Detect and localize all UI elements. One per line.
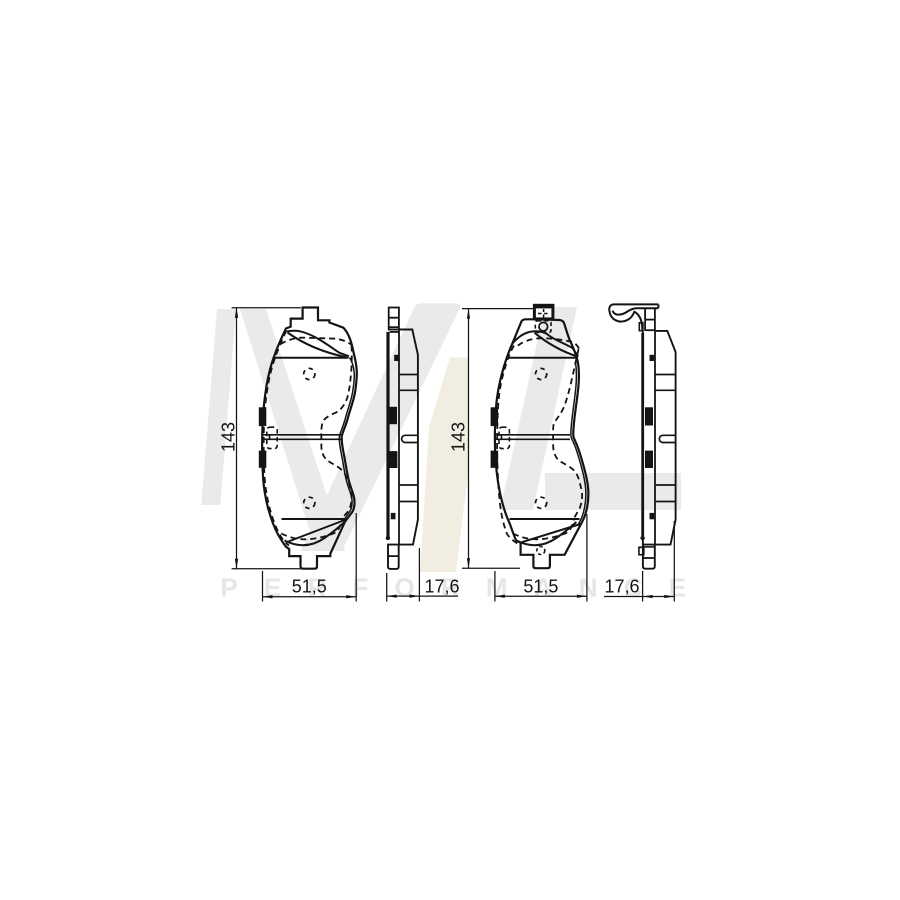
svg-text:143: 143 <box>449 422 469 452</box>
svg-text:51,5: 51,5 <box>292 577 327 597</box>
svg-text:17,6: 17,6 <box>604 577 639 597</box>
svg-text:17,6: 17,6 <box>424 577 459 597</box>
svg-text:51,5: 51,5 <box>523 577 558 597</box>
svg-text:143: 143 <box>219 422 239 452</box>
